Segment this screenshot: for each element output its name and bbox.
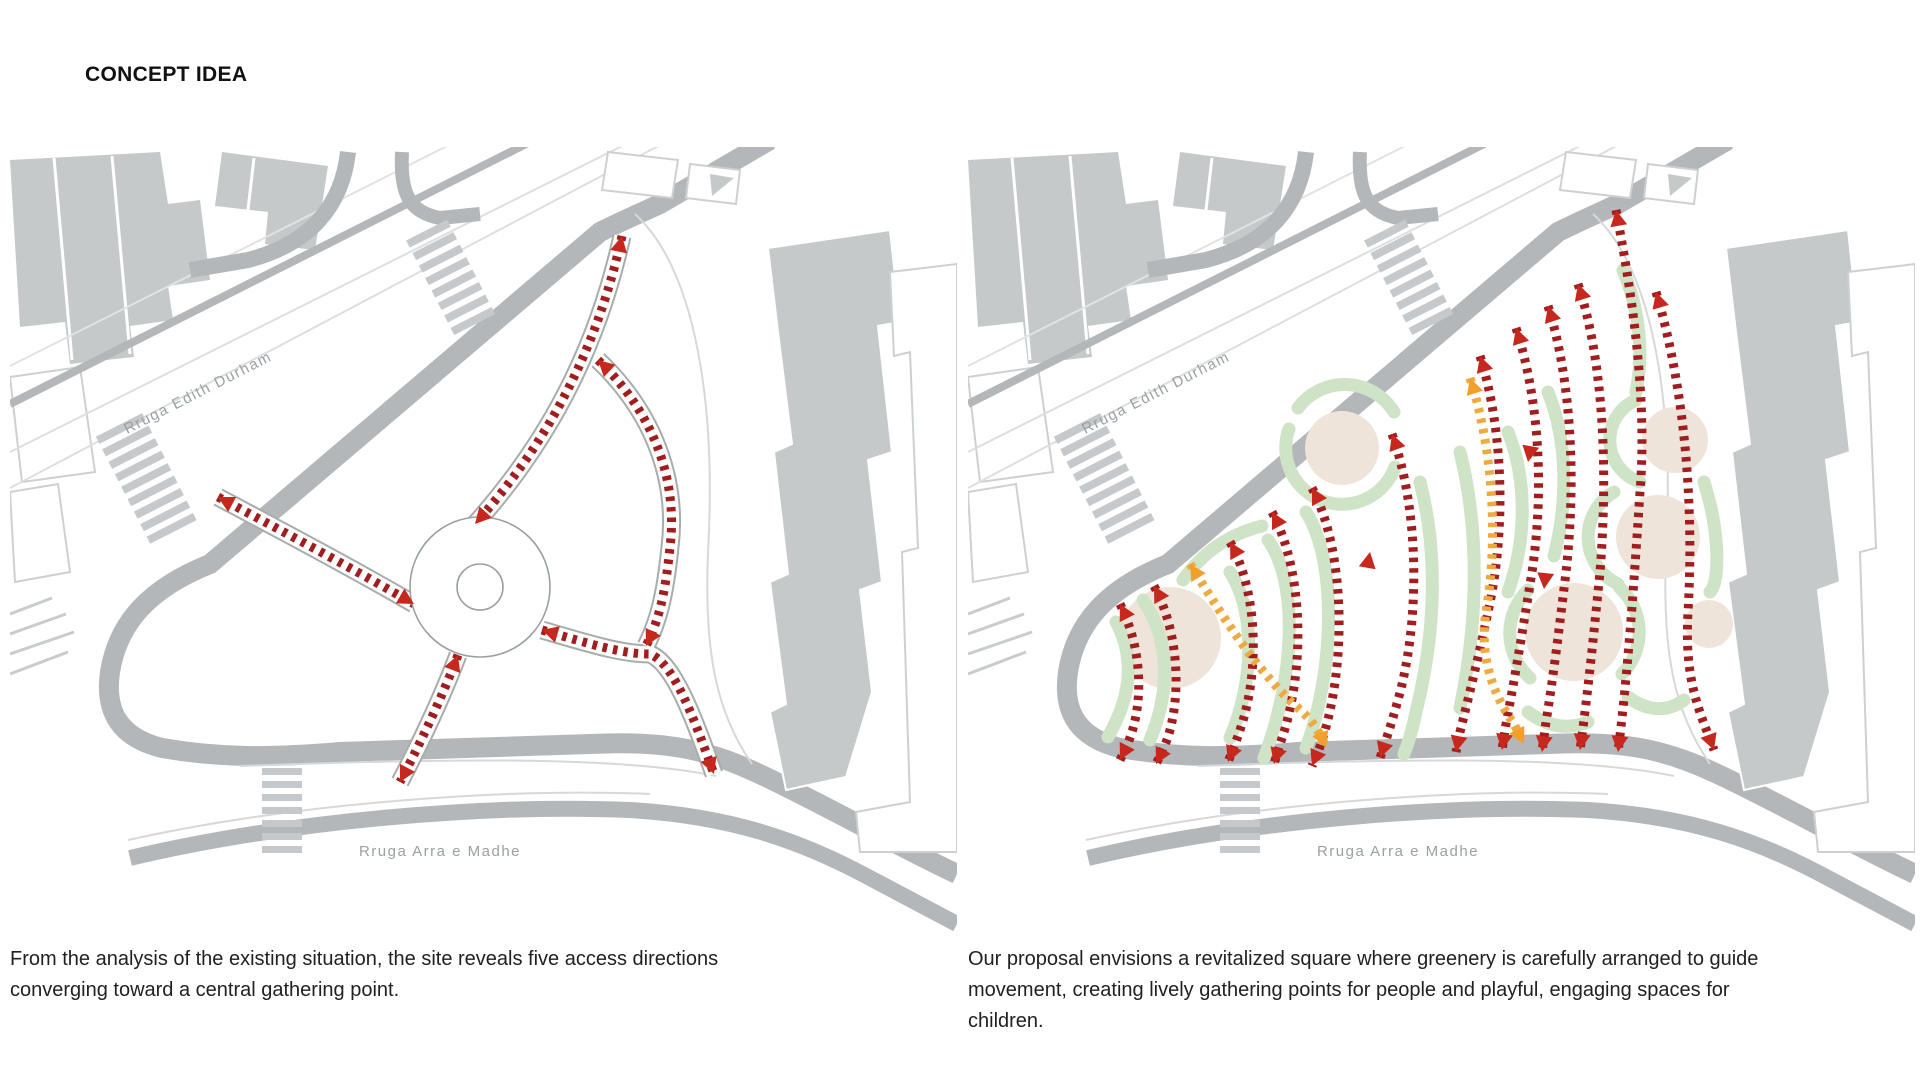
panel-existing-analysis: Rruga Edith Durham Rruga Arra e Madhe <box>10 147 957 937</box>
site-plan-proposal: Rruga Edith Durham Rruga Arra e Madhe <box>968 147 1915 937</box>
panel-proposal: Rruga Edith Durham Rruga Arra e Madhe <box>968 147 1915 937</box>
site-plan-existing: Rruga Edith Durham Rruga Arra e Madhe <box>10 147 957 937</box>
street-label-arra-e-madhe: Rruga Arra e Madhe <box>359 843 521 860</box>
street-label-arra-e-madhe: Rruga Arra e Madhe <box>1317 843 1479 860</box>
page-title: CONCEPT IDEA <box>85 63 247 87</box>
caption-existing-analysis: From the analysis of the existing situat… <box>10 944 755 1006</box>
basemap <box>968 147 1915 932</box>
central-gathering-point <box>410 517 550 657</box>
caption-proposal: Our proposal envisions a revitalized squ… <box>968 944 1803 1037</box>
